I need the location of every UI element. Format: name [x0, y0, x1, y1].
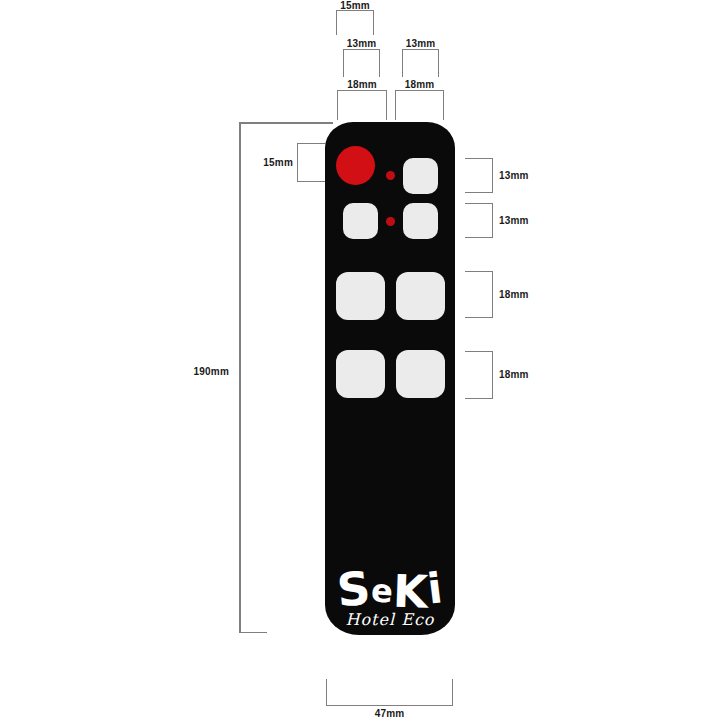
dim-label-top-18mm-right: 18mm	[395, 79, 444, 90]
dim-label-top-18mm-left: 18mm	[337, 79, 387, 90]
dim-bracket-right-13mm-a	[465, 158, 493, 193]
dim-label-left-15mm: 15mm	[253, 157, 293, 168]
dim-line-190mm-top-tick	[239, 122, 333, 124]
dim-label-top-13mm-left: 13mm	[343, 38, 380, 49]
logo-letter: e	[369, 567, 395, 614]
logo-letter: i	[425, 565, 445, 612]
led-dot-row1	[386, 171, 395, 180]
power-button	[336, 146, 375, 185]
dim-bracket-right-18mm-a	[465, 271, 493, 318]
logo-letter: K	[392, 568, 428, 615]
dim-line-190mm-vertical	[239, 122, 241, 633]
brand-logo: SeKi	[325, 566, 455, 612]
small-button-row1-right	[403, 158, 438, 194]
dim-label-left-190mm: 190mm	[185, 366, 229, 377]
dim-bracket-left-15mm	[297, 143, 325, 182]
dim-label-bottom-47mm: 47mm	[326, 708, 453, 719]
large-button-row3-right	[396, 272, 445, 320]
dim-bracket-top-13mm-right	[402, 49, 439, 77]
led-dot-row2	[386, 217, 395, 226]
diagram-canvas: 15mm 13mm 13mm 18mm 18mm 15mm 190mm 13mm…	[0, 0, 720, 720]
logo-letter: S	[335, 565, 372, 614]
dim-label-top-13mm-right: 13mm	[402, 38, 439, 49]
dim-bracket-right-13mm-b	[465, 203, 493, 238]
dim-bracket-bottom-47mm	[326, 679, 453, 706]
dim-label-right-13mm-a: 13mm	[499, 170, 529, 181]
dim-bracket-right-18mm-b	[465, 351, 493, 399]
dim-bracket-top-15mm	[336, 10, 374, 35]
remote-body: SeKi Hotel Eco	[325, 122, 455, 635]
large-button-row4-left	[336, 350, 385, 398]
dim-bracket-top-18mm-left	[337, 90, 387, 120]
brand-subtitle: Hotel Eco	[325, 610, 455, 629]
small-button-row2-left	[343, 203, 378, 239]
dim-label-right-18mm-a: 18mm	[499, 289, 529, 300]
dim-label-right-13mm-b: 13mm	[499, 215, 529, 226]
large-button-row3-left	[336, 272, 385, 320]
dim-label-right-18mm-b: 18mm	[499, 369, 529, 380]
large-button-row4-right	[396, 350, 445, 398]
dim-bracket-top-13mm-left	[343, 49, 380, 77]
dim-bracket-top-18mm-right	[395, 90, 444, 120]
small-button-row2-right	[403, 203, 438, 239]
dim-line-190mm-bottom-tick	[239, 632, 267, 634]
